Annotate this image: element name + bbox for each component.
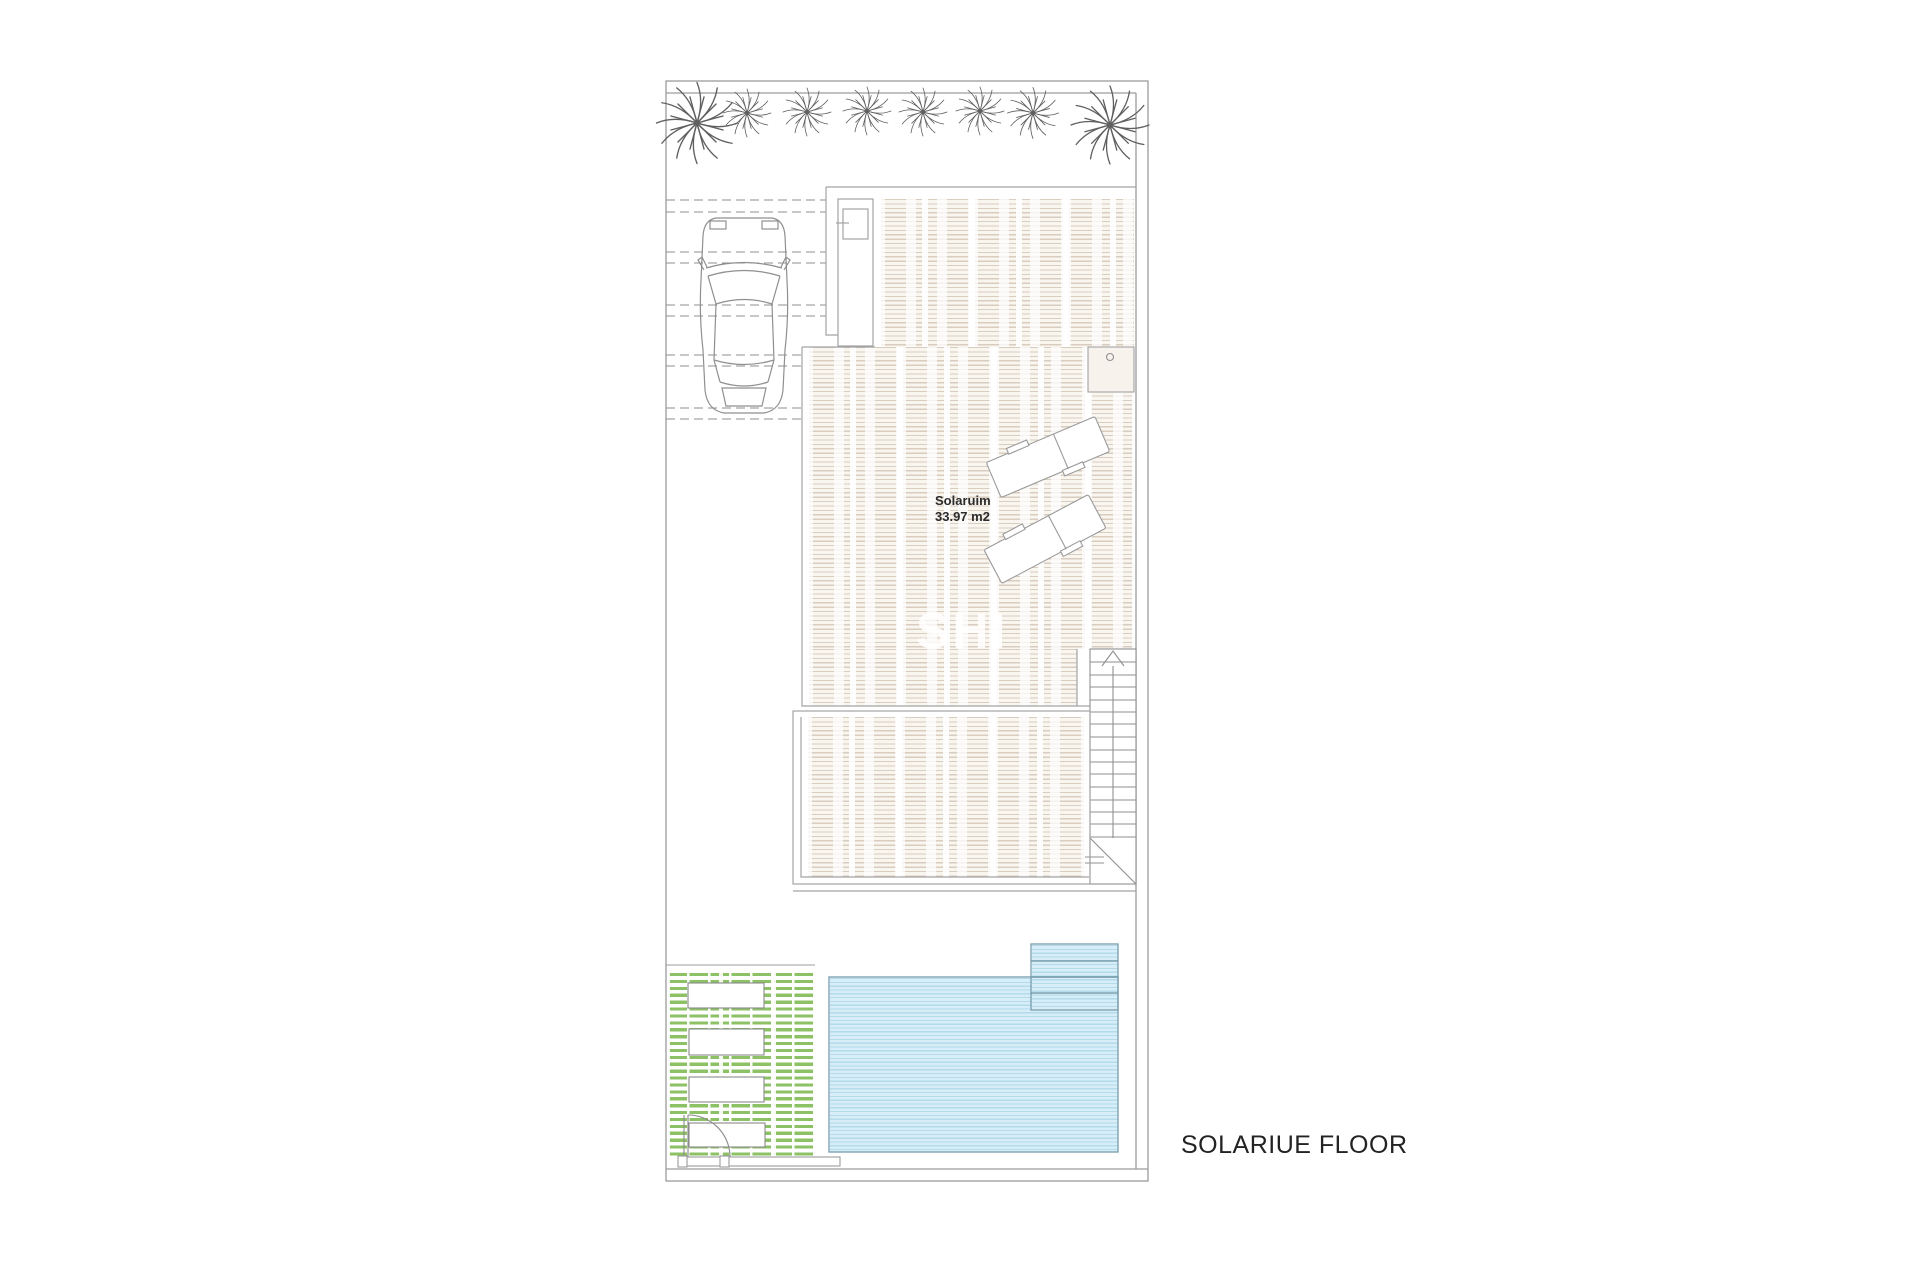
palm-tree-row (657, 83, 1150, 165)
planter (689, 1029, 764, 1055)
palm-tree-icon (956, 87, 1004, 135)
palm-tree-icon (1008, 88, 1059, 139)
pool-outline (829, 944, 1118, 1152)
terrace-outline (793, 711, 1136, 891)
floor-title: SOLARIUE FLOOR (1181, 1131, 1408, 1160)
room-area: 33.97 m2 (935, 509, 991, 525)
plan-linework (0, 0, 1920, 1280)
palm-tree-icon (657, 83, 738, 164)
planter (688, 983, 764, 1008)
garden-wall (678, 1156, 840, 1167)
palm-tree-icon (783, 88, 831, 136)
palm-tree-icon (899, 88, 947, 136)
planter (689, 1123, 765, 1147)
palm-tree-icon (1071, 86, 1149, 164)
staircase (1085, 649, 1136, 884)
room-name: Solaruim (935, 493, 991, 509)
sun-lounger-icon (984, 412, 1111, 502)
room-label: Solaruim 33.97 m2 (935, 493, 991, 525)
floor-plan-sheet: SHI (0, 0, 1920, 1280)
palm-tree-icon (843, 87, 891, 135)
planter (689, 1077, 764, 1102)
palm-tree-icon (723, 89, 771, 137)
sun-lounger-icon (982, 490, 1109, 588)
deck-equipment-box (1088, 347, 1134, 392)
plot-boundary (666, 81, 1148, 1181)
